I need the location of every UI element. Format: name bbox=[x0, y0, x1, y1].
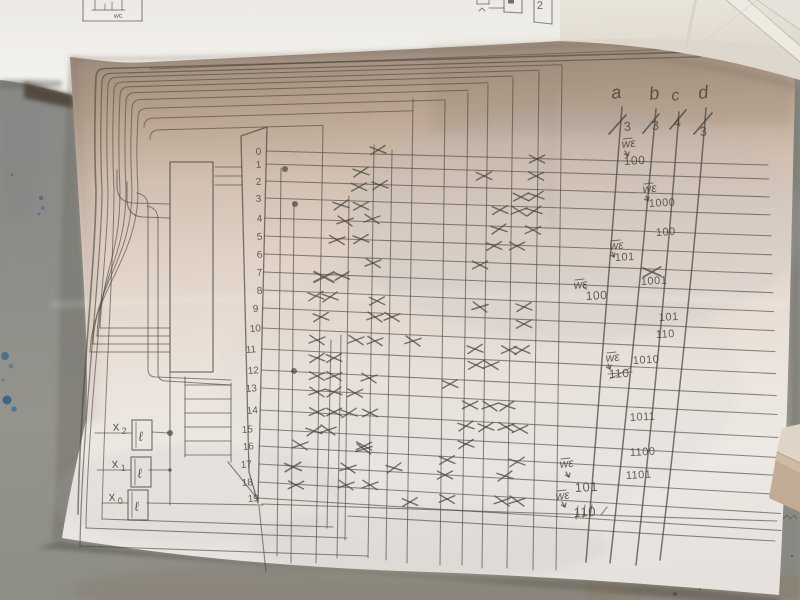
svg-text:3: 3 bbox=[623, 119, 631, 134]
svg-text:3: 3 bbox=[699, 124, 707, 139]
svg-text:15: 15 bbox=[241, 424, 253, 436]
svg-text:0: 0 bbox=[117, 496, 123, 506]
svg-text:3: 3 bbox=[651, 118, 659, 133]
svg-text:101: 101 bbox=[615, 251, 635, 264]
svg-text:1100: 1100 bbox=[630, 446, 656, 459]
svg-text:101: 101 bbox=[574, 479, 598, 495]
svg-text:101: 101 bbox=[659, 311, 679, 324]
svg-text:2: 2 bbox=[537, 0, 544, 12]
svg-text:1000: 1000 bbox=[649, 197, 676, 210]
svg-text:1010: 1010 bbox=[633, 354, 660, 367]
svg-text:2: 2 bbox=[121, 426, 127, 436]
svg-text:16: 16 bbox=[242, 441, 254, 453]
svg-text:1001: 1001 bbox=[641, 275, 668, 288]
svg-text:1101: 1101 bbox=[626, 469, 652, 482]
svg-text:11: 11 bbox=[245, 344, 257, 356]
svg-text:13: 13 bbox=[245, 383, 257, 395]
svg-text:1011: 1011 bbox=[630, 411, 656, 424]
svg-text:12: 12 bbox=[247, 365, 259, 377]
svg-text:10: 10 bbox=[249, 323, 261, 335]
svg-text:100: 100 bbox=[585, 288, 607, 303]
svg-text:14: 14 bbox=[246, 405, 258, 417]
svg-text:100: 100 bbox=[623, 153, 645, 168]
svg-text:19: 19 bbox=[247, 493, 259, 505]
svg-text:wc: wc bbox=[113, 13, 123, 21]
svg-text:100: 100 bbox=[656, 226, 676, 239]
svg-text:4: 4 bbox=[673, 115, 681, 130]
svg-text:1: 1 bbox=[120, 463, 126, 473]
svg-text:17: 17 bbox=[240, 459, 252, 471]
svg-text:110: 110 bbox=[656, 328, 676, 341]
